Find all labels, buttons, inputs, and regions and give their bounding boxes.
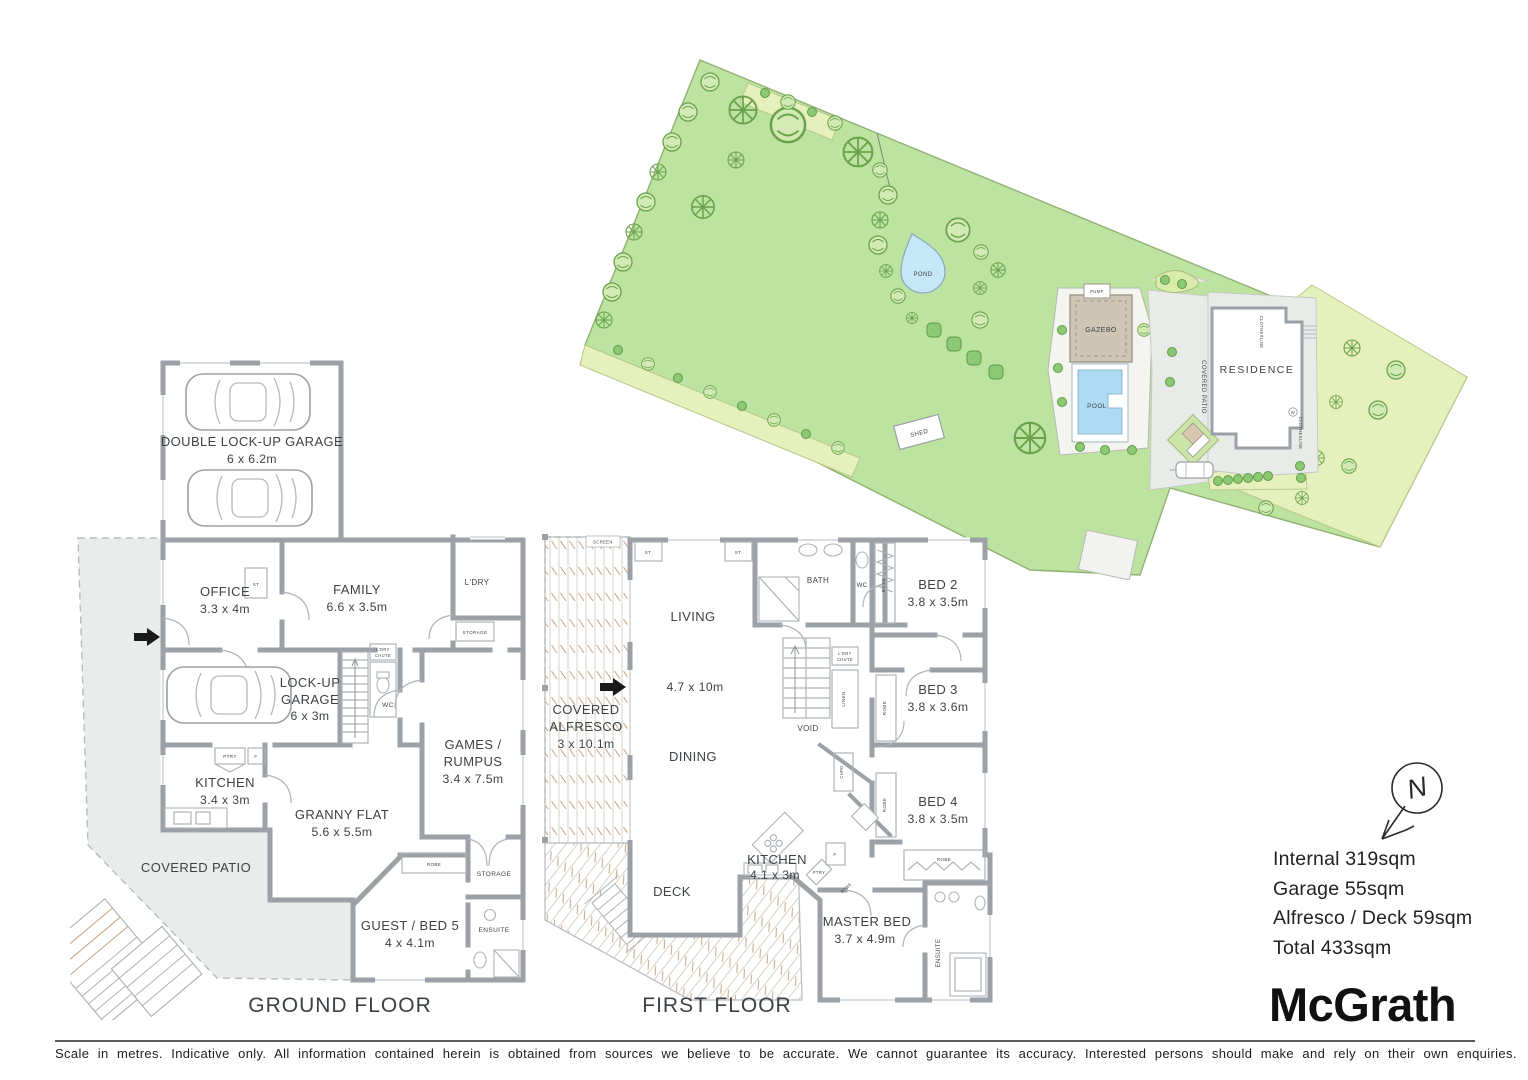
gstorage2-label: STORAGE	[477, 871, 512, 878]
f-chute-l2: CHUTE	[837, 657, 853, 662]
family-dims: 6.6 x 3.5m	[327, 600, 388, 614]
lockup-dims: 6 x 3m	[291, 709, 330, 723]
gazebo-label: GAZEBO	[1085, 327, 1117, 334]
alfresco-name1: COVERED	[552, 702, 619, 717]
area-total: Total 433sqm	[1273, 934, 1472, 964]
double-garage-name: DOUBLE LOCK-UP GARAGE	[161, 434, 343, 449]
bed4-name: BED 4	[918, 794, 958, 809]
f-chute-l1: L'DRY	[838, 651, 852, 656]
ldry-label: L'DRY	[465, 578, 490, 587]
floorplan-page: POND SHED PUMP GAZEBO POOL	[0, 0, 1528, 1080]
st2-label: ST	[735, 550, 742, 555]
master-dims: 3.7 x 4.9m	[835, 932, 896, 946]
linen-label: LINEN	[841, 691, 846, 706]
void-label: VOID	[797, 724, 818, 733]
living-dims: 4.7 x 10m	[666, 680, 723, 694]
site-car	[1170, 462, 1213, 478]
area-alfresco-deck: Alfresco / Deck 59sqm	[1273, 904, 1472, 934]
ground-floor-plan: ROBE ST STORAGE L'DRY CHUTE WC PTRY F	[70, 360, 530, 1020]
bed3-robe: ROBE	[882, 701, 887, 715]
lockup-name2: GARAGE	[281, 692, 339, 707]
clothesline-label-2: CLOTHESLINE	[1298, 417, 1303, 450]
dining-name: DINING	[669, 749, 717, 764]
bath-label: BATH	[807, 576, 829, 585]
gkitchen-name: KITCHEN	[195, 775, 255, 790]
ldry-storage-label: STORAGE	[463, 630, 488, 635]
ground-wc-label: WC	[382, 702, 394, 709]
deck-label: DECK	[653, 884, 691, 899]
screen-label: SCREEN	[593, 540, 612, 545]
ptry-label-g: PTRY	[223, 754, 237, 759]
fkitchen-name: KITCHEN	[747, 852, 807, 867]
first-floor-caption: FIRST FLOOR	[607, 994, 827, 1018]
area-summary: Internal 319sqm Garage 55sqm Alfresco / …	[1273, 845, 1472, 963]
ground-floor-caption: GROUND FLOOR	[230, 994, 450, 1018]
guest-dims: 4 x 4.1m	[385, 936, 435, 950]
office-dims: 3.3 x 4m	[200, 602, 250, 616]
pump-label: PUMP	[1090, 289, 1103, 294]
office-name: OFFICE	[200, 584, 250, 599]
fensuite-label: ENSUITE	[936, 939, 942, 968]
ground-chute-l2: CHUTE	[375, 653, 391, 658]
site-covered-patio-label: COVERED PATIO	[1200, 360, 1206, 414]
compass-north-label: N	[1404, 771, 1431, 805]
f2-label: F	[833, 852, 836, 857]
pool-area: PUMP GAZEBO POOL	[1048, 284, 1152, 455]
master-name: MASTER BED	[823, 914, 912, 929]
mcgrath-logo: McGrath	[1269, 977, 1456, 1032]
bed4-dims: 3.8 x 3.5m	[908, 812, 969, 826]
granny-dims: 5.6 x 5.5m	[312, 825, 373, 839]
guest-robe-label: ROBE	[427, 862, 441, 867]
w-meter-label: W	[1291, 410, 1295, 415]
double-garage-dims: 6 x 6.2m	[227, 452, 277, 466]
living-name: LIVING	[670, 609, 715, 624]
fkitchen-dims: 4.1 x 3m	[750, 868, 800, 882]
footer-rule	[55, 1040, 1475, 1042]
family-name: FAMILY	[333, 582, 381, 597]
alfresco-name2: ALFRESCO	[549, 719, 622, 734]
residence-label: RESIDENCE	[1220, 364, 1295, 376]
st1-label: ST	[645, 550, 652, 555]
gensuite-label: ENSUITE	[479, 927, 510, 934]
disclaimer-text: Scale in metres. Indicative only. All in…	[55, 1046, 1505, 1061]
site-plan: POND SHED PUMP GAZEBO POOL	[560, 30, 1480, 580]
pool-label: POOL	[1087, 403, 1107, 410]
master-robe: ROBE	[937, 857, 951, 862]
area-internal: Internal 319sqm	[1273, 845, 1472, 875]
games-dims: 3.4 x 7.5m	[443, 772, 504, 786]
ptry2-label: PTRY	[813, 870, 825, 875]
bed3-dims: 3.8 x 3.6m	[908, 700, 969, 714]
bed2-name: BED 2	[918, 577, 958, 592]
area-garage: Garage 55sqm	[1273, 875, 1472, 905]
guest-name: GUEST / BED 5	[361, 918, 459, 933]
alfresco-dims: 3 x 10.1m	[557, 737, 614, 751]
pool: POOL	[1072, 364, 1128, 442]
compass-icon: N	[1375, 758, 1455, 853]
lockup-name1: LOCK-UP	[280, 675, 341, 690]
cupd-label: CUPD	[839, 765, 844, 778]
clothesline-label-1: CLOTHESLINE	[1259, 316, 1264, 349]
f-label-g: F	[254, 754, 257, 759]
bed2-dims: 3.8 x 3.5m	[908, 595, 969, 609]
fwc-label: WC	[857, 583, 868, 589]
granny-name: GRANNY FLAT	[295, 807, 389, 822]
games-name2: RUMPUS	[444, 754, 503, 769]
ground-chute-l1: L'DRY	[376, 647, 390, 652]
bed3-name: BED 3	[918, 682, 958, 697]
gazebo: PUMP GAZEBO	[1070, 284, 1132, 362]
pond-label: POND	[914, 272, 933, 278]
gkitchen-dims: 3.4 x 3m	[200, 793, 250, 807]
gpatio-label: COVERED PATIO	[141, 860, 251, 875]
first-floor-plan: SCREEN BATH WC	[540, 525, 1000, 1005]
office-st-label: ST	[253, 582, 260, 587]
bed4-robe: ROBE	[882, 798, 887, 812]
games-name1: GAMES /	[445, 737, 502, 752]
